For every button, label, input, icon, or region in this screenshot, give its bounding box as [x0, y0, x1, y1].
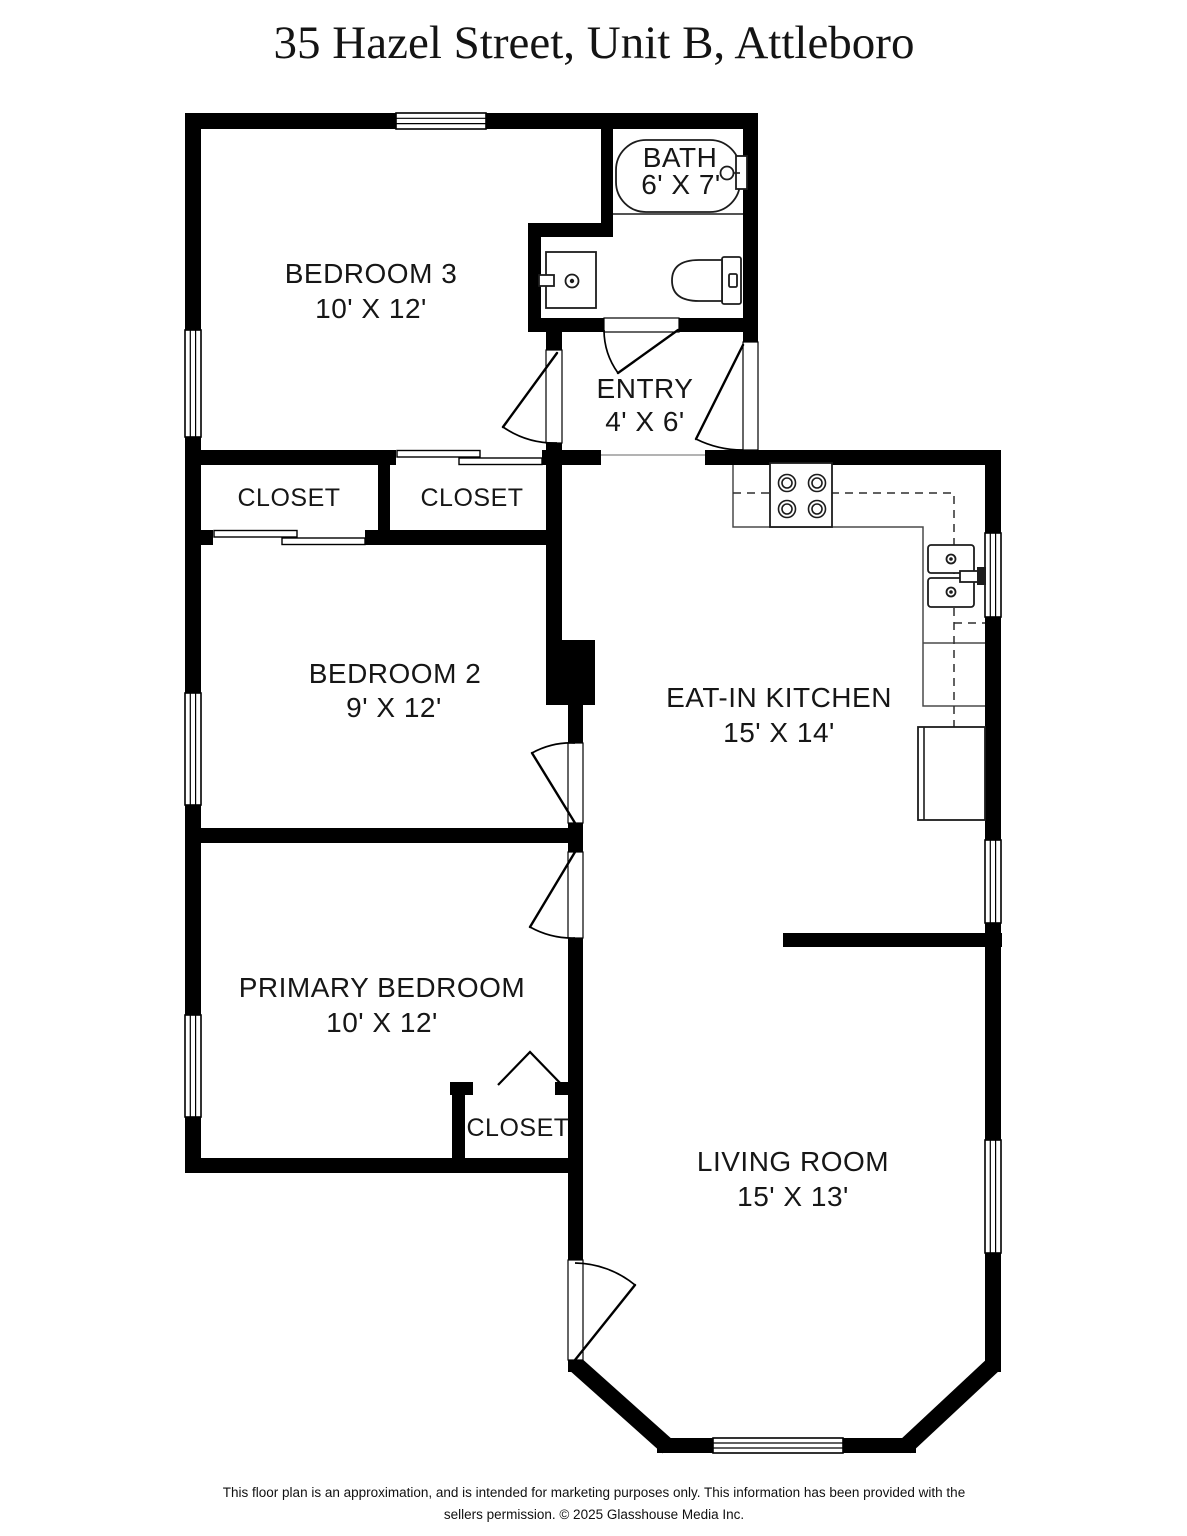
sliding-door-closet-bedroom2 — [214, 531, 365, 545]
label-kitchen-name: EAT-IN KITCHEN — [666, 682, 892, 713]
kitchen-sink-icon — [928, 545, 986, 607]
window-primary-left — [185, 1015, 201, 1117]
door-living-exterior — [568, 1260, 635, 1360]
label-closet-bedroom3: CLOSET — [420, 484, 523, 512]
label-primary-name: PRIMARY BEDROOM — [239, 972, 526, 1003]
label-closet-primary: CLOSET — [466, 1114, 569, 1142]
windows — [185, 113, 1001, 1453]
toilet-icon — [672, 257, 741, 304]
refrigerator-icon — [918, 727, 985, 820]
label-living-name: LIVING ROOM — [697, 1146, 889, 1177]
sliding-door-closet-bedroom3 — [397, 451, 542, 465]
window-kitchen-right-lower — [985, 840, 1001, 923]
door-bedroom2 — [532, 743, 583, 823]
bay-wall-left — [574, 1363, 668, 1447]
floor-plan-page: BEDROOM 3 10' X 12' BATH 6' X 7' ENTRY 4… — [0, 0, 1187, 1536]
walls — [185, 113, 1002, 1453]
page-title: 35 Hazel Street, Unit B, Attleboro — [274, 17, 915, 69]
bathroom-sink-icon — [539, 252, 596, 308]
door-bathroom — [604, 318, 679, 373]
label-bedroom2-dims: 9' X 12' — [346, 692, 442, 723]
window-bedroom3-left — [185, 330, 201, 437]
footer-disclaimer-line2: sellers permission. © 2025 Glasshouse Me… — [444, 1507, 744, 1522]
chimney — [546, 640, 595, 705]
footer-disclaimer-line1: This floor plan is an approximation, and… — [223, 1485, 965, 1500]
label-bedroom3-name: BEDROOM 3 — [285, 258, 458, 289]
label-kitchen-dims: 15' X 14' — [723, 717, 835, 748]
label-entry-dims: 4' X 6' — [605, 406, 685, 437]
bifold-door-primary-closet — [498, 1052, 562, 1085]
window-living-right — [985, 1140, 1001, 1253]
label-primary-dims: 10' X 12' — [326, 1007, 438, 1038]
bay-wall-right — [905, 1363, 995, 1447]
label-entry-name: ENTRY — [597, 373, 694, 404]
stove-icon — [770, 463, 832, 527]
floor-plan-canvas: BEDROOM 3 10' X 12' BATH 6' X 7' ENTRY 4… — [0, 0, 1187, 1536]
door-bedroom3 — [503, 350, 562, 443]
window-kitchen-right-upper — [985, 533, 1001, 617]
label-closet-bedroom2: CLOSET — [237, 484, 340, 512]
label-bath-dims: 6' X 7' — [641, 169, 721, 200]
window-bedroom2-left — [185, 693, 201, 805]
label-bedroom3-dims: 10' X 12' — [315, 293, 427, 324]
door-primary-bedroom — [530, 852, 583, 938]
kitchen-living-divider — [783, 933, 1002, 947]
label-living-dims: 15' X 13' — [737, 1181, 849, 1212]
window-bay-bottom — [713, 1438, 843, 1453]
label-bedroom2-name: BEDROOM 2 — [309, 658, 482, 689]
door-entry-exterior — [696, 342, 758, 450]
window-bedroom3-top — [396, 113, 486, 129]
